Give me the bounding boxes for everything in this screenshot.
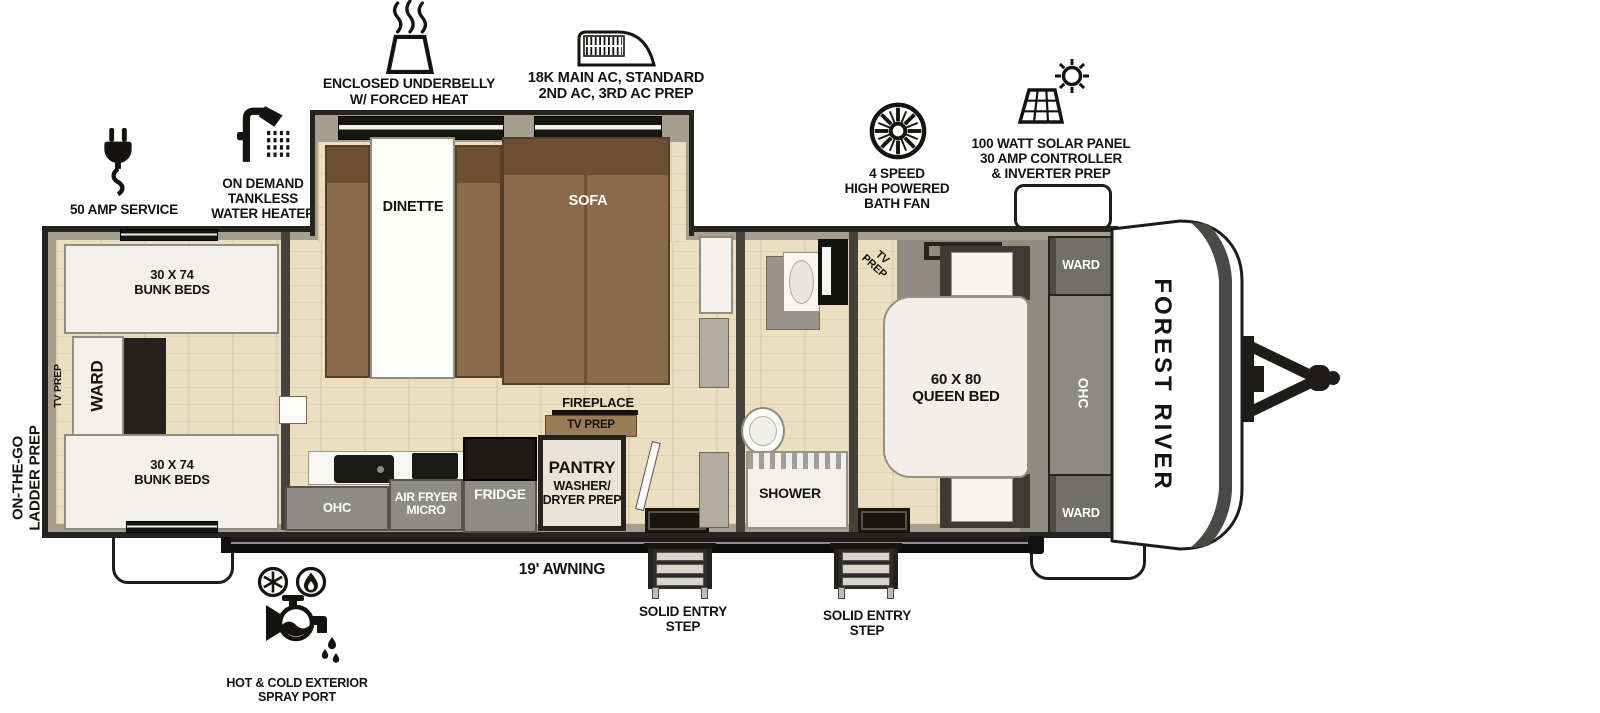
- label-awning: 19' AWNING: [502, 561, 622, 578]
- brand-logo: FOREST RIVER: [1149, 278, 1175, 491]
- awning-end-right: [1028, 536, 1044, 554]
- label-ladder-prep: ON-THE-GO LADDER PREP: [11, 425, 44, 530]
- label-entry-step-2: SOLID ENTRY STEP: [812, 608, 922, 638]
- front-cap-and-hitch: [0, 0, 1600, 713]
- awning-end-left: [221, 537, 231, 553]
- entry-step-1: [648, 543, 712, 599]
- hitch-icon: [1242, 336, 1340, 422]
- spray-port-icon: [252, 565, 348, 669]
- label-spray-port: HOT & COLD EXTERIOR SPRAY PORT: [212, 676, 382, 704]
- awning-rail: [228, 538, 1034, 553]
- label-entry-step-1: SOLID ENTRY STEP: [628, 604, 738, 634]
- floorplan-diagram: 50 AMP SERVICE ON DEMAND TANKLESS WATER …: [0, 0, 1600, 713]
- entry-step-2: [834, 543, 898, 599]
